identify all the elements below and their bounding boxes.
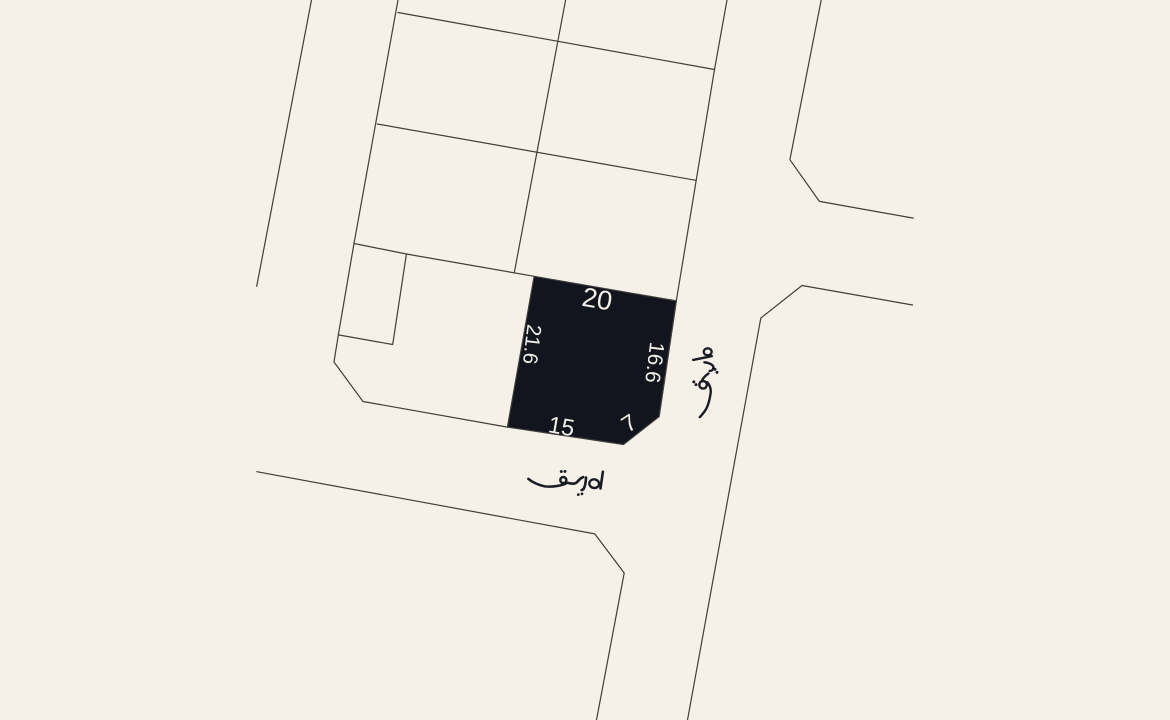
svg-text:20: 20 (580, 282, 615, 317)
svg-text:21.6: 21.6 (518, 323, 546, 365)
svg-text:15: 15 (546, 411, 576, 441)
